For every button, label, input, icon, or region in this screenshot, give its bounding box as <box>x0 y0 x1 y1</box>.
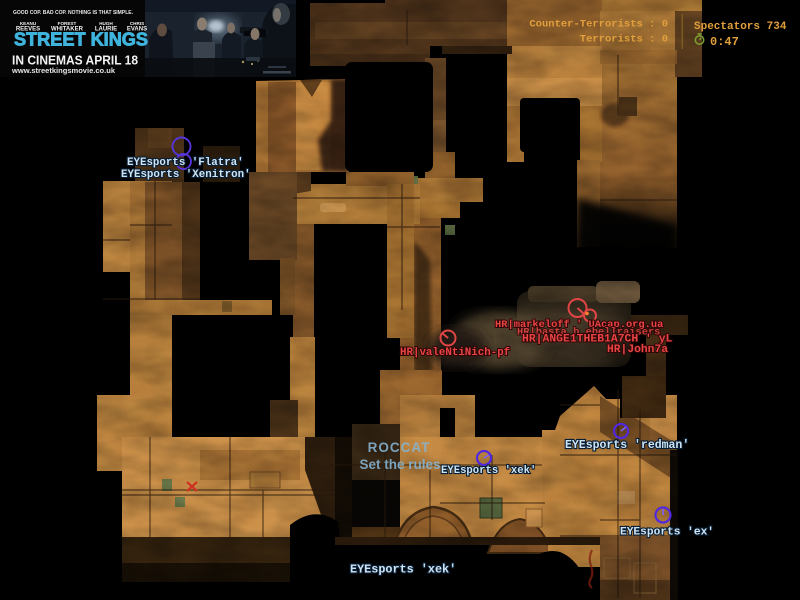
svg-text:KEANU: KEANU <box>20 21 37 26</box>
svg-text:HUGH: HUGH <box>99 21 113 26</box>
svg-text:www.streetkingsmovie.co.uk: www.streetkingsmovie.co.uk <box>11 66 116 75</box>
svg-text:ROCCAT: ROCCAT <box>368 440 431 455</box>
svg-text:HR|John7a: HR|John7a <box>607 344 668 356</box>
svg-text:CHRIS: CHRIS <box>130 21 144 26</box>
svg-text:EYEsports 'xek': EYEsports 'xek' <box>441 465 536 477</box>
svg-text:HR|valeNtiNich-pf: HR|valeNtiNich-pf <box>400 347 510 359</box>
svg-text:Spectators 734: Spectators 734 <box>694 21 787 33</box>
svg-text:STREET KINGS: STREET KINGS <box>14 30 148 50</box>
svg-text:EYEsports 'xek': EYEsports 'xek' <box>350 563 456 577</box>
svg-text:EYEsports 'Flatra': EYEsports 'Flatra' <box>127 157 244 169</box>
svg-text:Terrorists : 0: Terrorists : 0 <box>580 34 668 46</box>
svg-text:Set the rules: Set the rules <box>359 457 440 472</box>
svg-text:GOOD COP. BAD COP. NOTHING I: GOOD COP. BAD COP. NOTHING IS THAT SIMPL… <box>13 10 133 16</box>
svg-text:0:47: 0:47 <box>710 35 739 49</box>
svg-text:Counter-Terrorists : 0: Counter-Terrorists : 0 <box>529 19 668 31</box>
svg-text:EYEsports 'ex': EYEsports 'ex' <box>620 527 714 539</box>
svg-text:EYEsports 'redman': EYEsports 'redman' <box>565 439 689 452</box>
svg-text:EYEsports 'Xenitron': EYEsports 'Xenitron' <box>121 169 251 181</box>
svg-text:FOREST: FOREST <box>58 21 77 26</box>
